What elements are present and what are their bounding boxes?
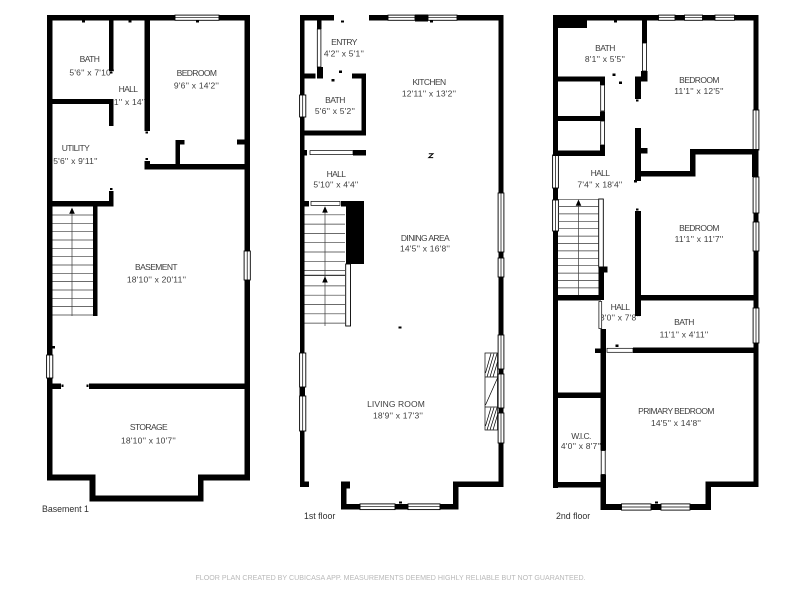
svg-text:18'10'' x 20'11'': 18'10'' x 20'11'' — [127, 275, 186, 285]
svg-text:7'4'' x 18'4'': 7'4'' x 18'4'' — [577, 180, 622, 190]
svg-text:Basement 1: Basement 1 — [42, 504, 89, 514]
svg-text:STORAGE: STORAGE — [130, 422, 168, 432]
svg-text:BEDROOM: BEDROOM — [679, 75, 719, 85]
svg-text:12'11'' x 13'2'': 12'11'' x 13'2'' — [402, 89, 457, 99]
svg-text:11'1'' x 4'11'': 11'1'' x 4'11'' — [660, 330, 709, 340]
svg-text:5'6'' x 9'11'': 5'6'' x 9'11'' — [53, 156, 98, 166]
svg-text:14'5'' x 16'8'': 14'5'' x 16'8'' — [400, 244, 450, 254]
svg-text:8'1'' x 5'5'': 8'1'' x 5'5'' — [585, 54, 625, 64]
svg-text:3'0'' x 7'8'': 3'0'' x 7'8'' — [600, 313, 640, 323]
svg-text:'1'' x 14'7: '1'' x 14'7 — [112, 97, 149, 107]
svg-text:W.I.C.: W.I.C. — [571, 431, 591, 441]
svg-text:FLOOR PLAN CREATED BY CUBICASA: FLOOR PLAN CREATED BY CUBICASA APP. MEAS… — [195, 574, 585, 582]
svg-text:BEDROOM: BEDROOM — [177, 68, 217, 78]
svg-text:HALL: HALL — [611, 302, 631, 312]
svg-text:LIVING ROOM: LIVING ROOM — [367, 399, 425, 409]
svg-text:BATH: BATH — [80, 54, 100, 64]
svg-text:KITCHEN: KITCHEN — [412, 77, 446, 87]
svg-text:11'1'' x 11'7'': 11'1'' x 11'7'' — [675, 234, 724, 244]
svg-text:HALL: HALL — [119, 84, 139, 94]
svg-text:5'10'' x 4'4'': 5'10'' x 4'4'' — [313, 180, 358, 190]
svg-text:UTILITY: UTILITY — [62, 143, 90, 153]
svg-text:4'2'' x 5'1'': 4'2'' x 5'1'' — [324, 49, 364, 59]
svg-text:HALL: HALL — [327, 169, 347, 179]
svg-text:14'5'' x 14'8'': 14'5'' x 14'8'' — [651, 418, 701, 428]
svg-text:DINING AREA: DINING AREA — [401, 233, 450, 243]
svg-text:4'0'' x 8'7'': 4'0'' x 8'7'' — [561, 441, 601, 451]
svg-text:BASEMENT: BASEMENT — [135, 262, 177, 272]
svg-text:9'6'' x 14'2'': 9'6'' x 14'2'' — [174, 81, 219, 91]
svg-text:BATH: BATH — [674, 317, 694, 327]
svg-text:18'10'' x 10'7'': 18'10'' x 10'7'' — [121, 436, 176, 446]
svg-text:BATH: BATH — [325, 95, 345, 105]
svg-text:ENTRY: ENTRY — [331, 37, 358, 47]
svg-text:PRIMARY BEDROOM: PRIMARY BEDROOM — [638, 406, 714, 416]
svg-text:BATH: BATH — [595, 43, 615, 53]
svg-text:1st floor: 1st floor — [304, 511, 335, 521]
svg-text:2nd floor: 2nd floor — [556, 511, 590, 521]
svg-text:HALL: HALL — [591, 168, 611, 178]
svg-text:5'6'' x 7'10'': 5'6'' x 7'10'' — [69, 68, 114, 78]
svg-text:BEDROOM: BEDROOM — [679, 223, 719, 233]
svg-text:18'9'' x 17'3'': 18'9'' x 17'3'' — [373, 411, 423, 421]
svg-text:11'1'' x 12'5'': 11'1'' x 12'5'' — [674, 86, 724, 96]
svg-text:5'6'' x 5'2'': 5'6'' x 5'2'' — [315, 106, 355, 116]
